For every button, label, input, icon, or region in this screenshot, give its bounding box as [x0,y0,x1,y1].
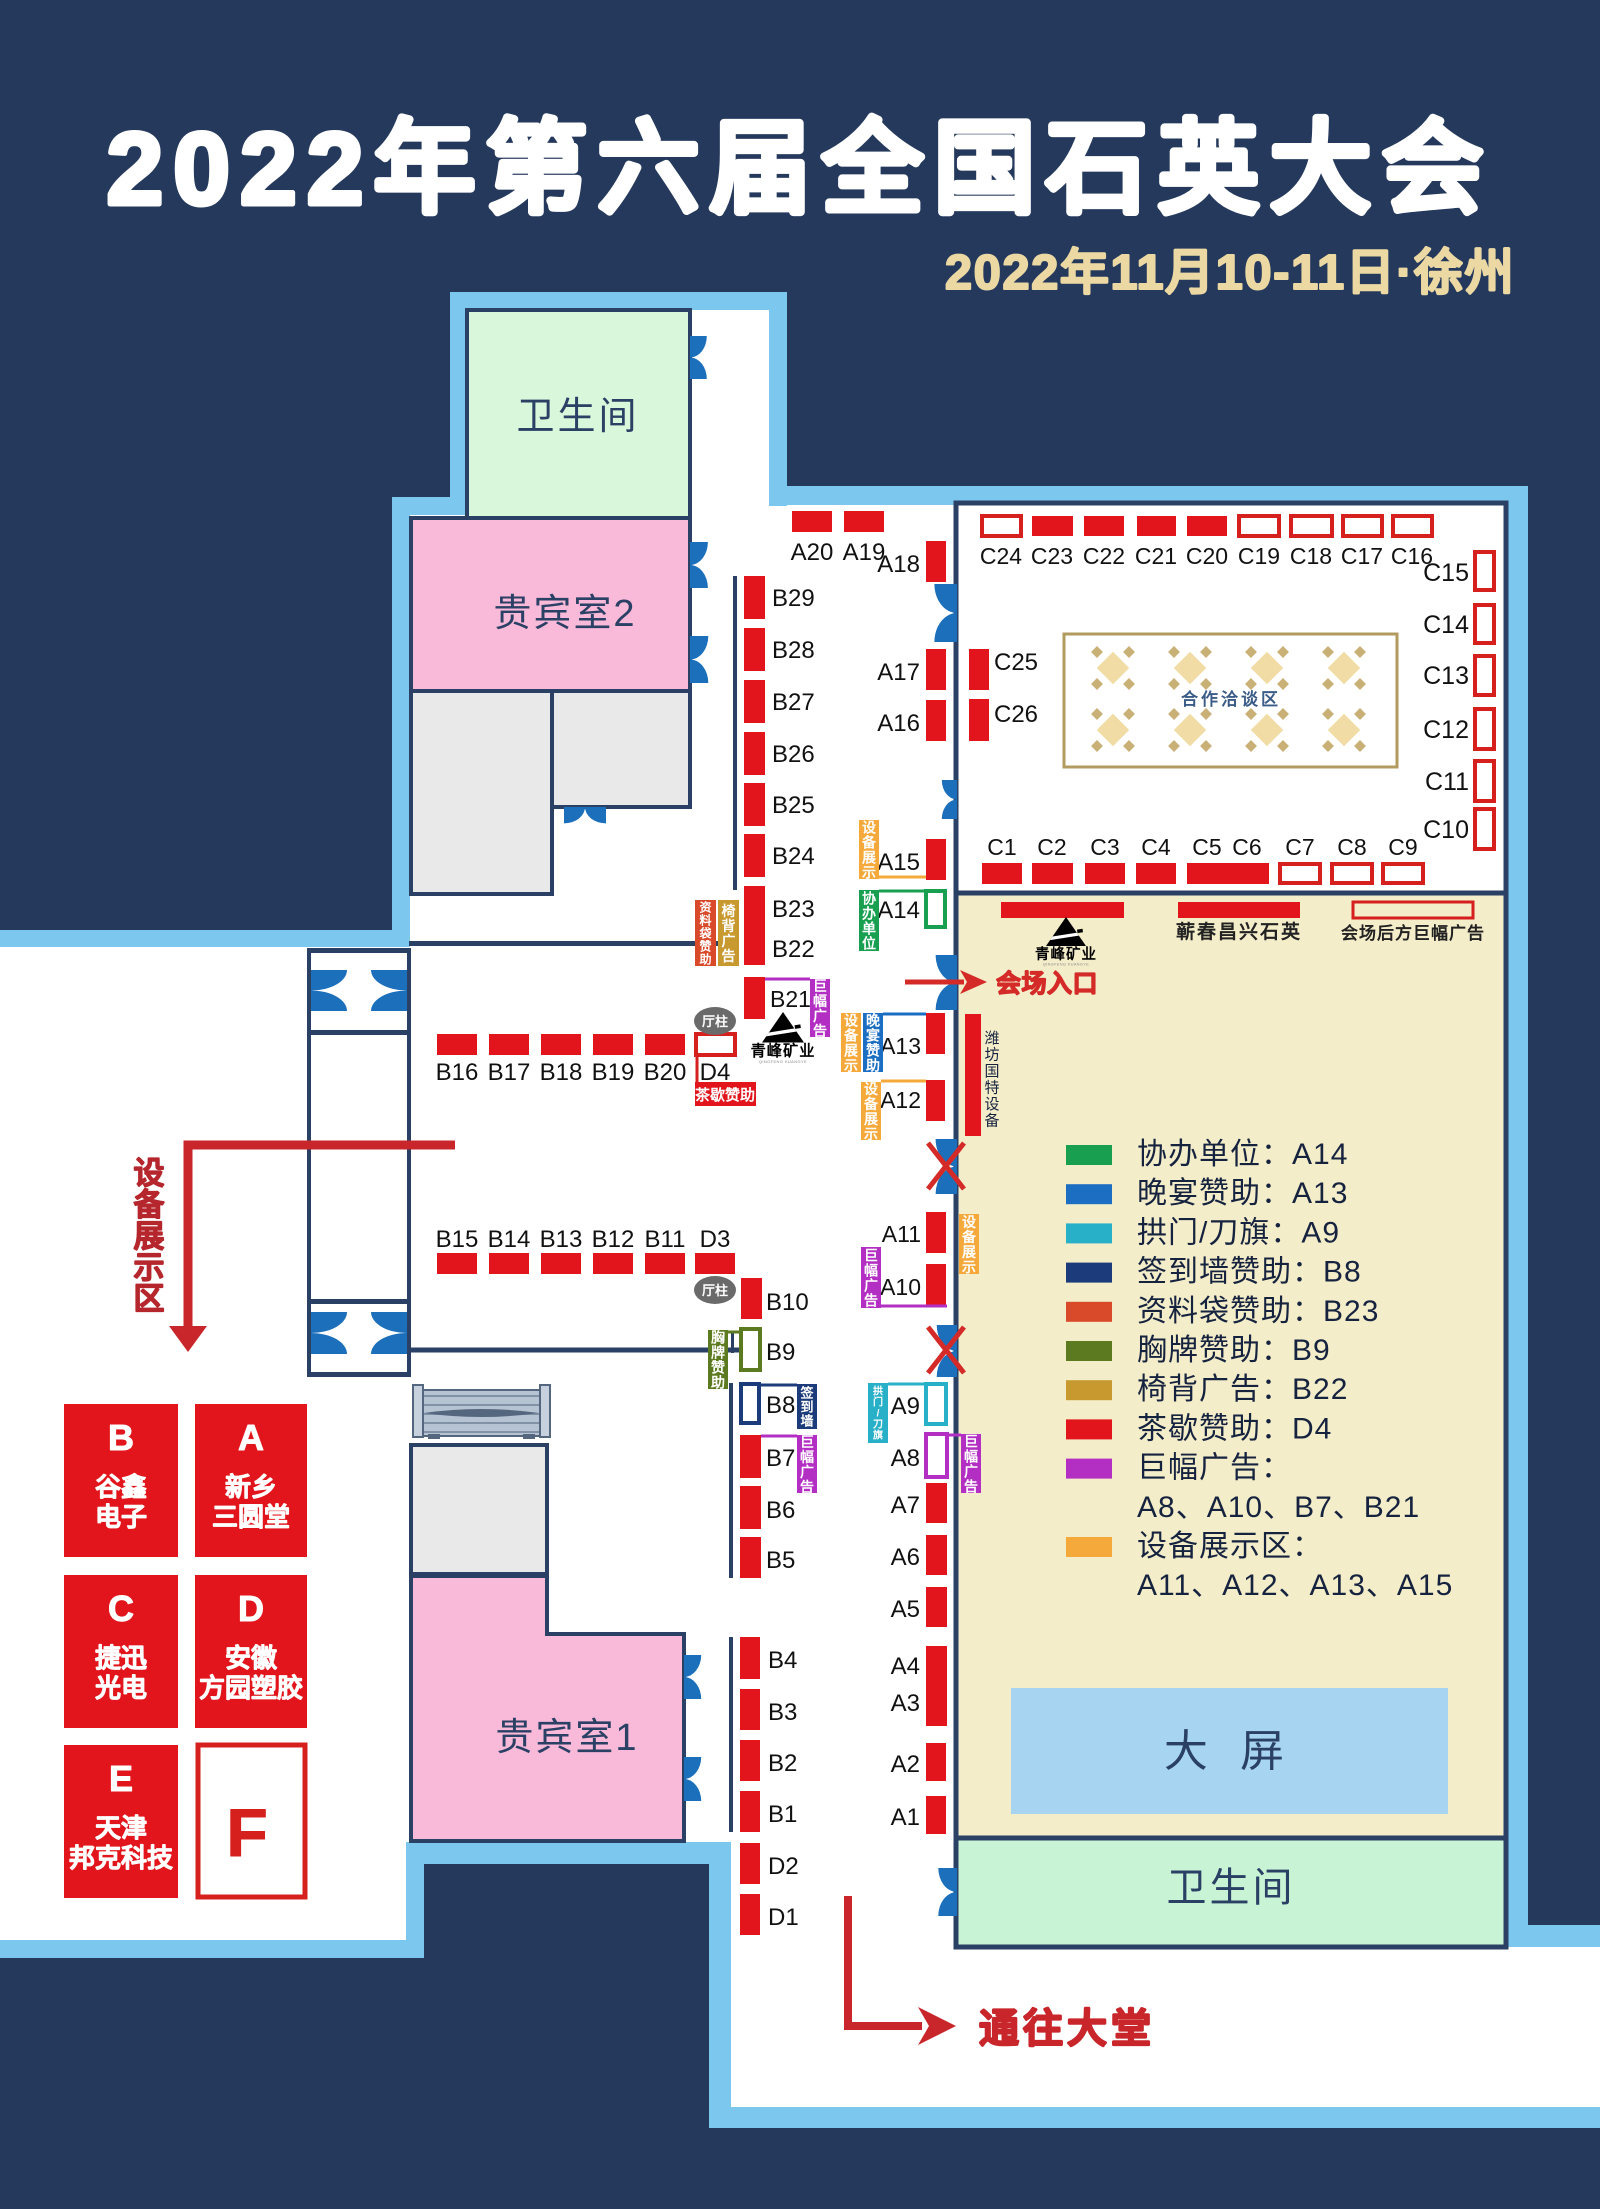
svg-text:D1: D1 [768,1904,799,1931]
svg-text:广: 广 [722,933,736,949]
svg-text:A12: A12 [880,1087,921,1113]
svg-text:牌: 牌 [711,1345,725,1361]
svg-text:胸: 胸 [711,1330,725,1346]
svg-text:胸牌赞助：B9: 胸牌赞助：B9 [1137,1334,1331,1367]
svg-text:安徽: 安徽 [225,1643,278,1673]
svg-text:背: 背 [722,918,736,934]
svg-text:示: 示 [844,1058,858,1074]
svg-text:巨幅广告：: 巨幅广告： [1137,1452,1292,1485]
svg-text:C5: C5 [1192,834,1221,860]
svg-text:C4: C4 [1141,834,1171,860]
svg-text:特: 特 [984,1080,999,1097]
svg-text:宴: 宴 [866,1028,880,1044]
svg-text:签到墙赞助：B8: 签到墙赞助：B8 [1137,1256,1362,1289]
svg-text:光电: 光电 [94,1673,147,1703]
svg-text:协: 协 [862,891,876,907]
svg-text:备: 备 [861,835,877,851]
svg-text:QINGFENG KUANGYE: QINGFENG KUANGYE [1043,963,1089,967]
svg-text:备: 备 [961,1229,977,1245]
svg-text:A17: A17 [877,659,920,686]
svg-text:捷迅: 捷迅 [95,1643,147,1673]
svg-text:C17: C17 [1341,543,1383,569]
svg-text:A9: A9 [891,1393,920,1420]
svg-text:广: 广 [800,1464,814,1480]
svg-text:示: 示 [962,1259,976,1275]
svg-text:C14: C14 [1423,611,1469,639]
svg-text:B: B [108,1417,134,1458]
svg-text:幅: 幅 [864,1263,878,1279]
svg-text:B27: B27 [772,689,815,716]
svg-text:A13: A13 [880,1033,921,1059]
svg-text:B24: B24 [772,843,815,870]
svg-text:C22: C22 [1083,543,1125,569]
svg-text:设: 设 [844,1013,859,1029]
svg-text:C25: C25 [994,649,1038,676]
svg-text:单: 单 [862,921,876,937]
svg-text:B15: B15 [436,1226,479,1253]
svg-text:A14: A14 [877,897,920,924]
svg-text:幅: 幅 [964,1449,978,1465]
svg-text:B16: B16 [436,1059,479,1086]
svg-text:备: 备 [863,1096,879,1112]
svg-text:贵宾室2: 贵宾室2 [493,593,636,635]
svg-text:墙: 墙 [800,1414,813,1429]
svg-text:厅柱: 厅柱 [702,1283,728,1298]
svg-text:晚: 晚 [866,1013,880,1029]
svg-text:方园塑胶: 方园塑胶 [199,1673,303,1703]
svg-text:C20: C20 [1186,543,1228,569]
svg-text:F: F [226,1795,268,1871]
svg-text:设: 设 [134,1156,165,1191]
svg-text:B29: B29 [772,585,815,612]
svg-text:展: 展 [962,1244,976,1260]
svg-text:D3: D3 [700,1226,731,1253]
svg-text:C13: C13 [1423,662,1469,690]
svg-text:潍: 潍 [984,1030,999,1047]
svg-text:C26: C26 [994,701,1038,728]
svg-text:C21: C21 [1135,543,1177,569]
svg-text:设: 设 [984,1096,999,1113]
svg-text:会场入口: 会场入口 [996,970,1098,998]
svg-text:A3: A3 [891,1690,920,1717]
svg-text:广: 广 [864,1278,878,1294]
svg-text:资料袋赞助：B23: 资料袋赞助：B23 [1137,1295,1379,1328]
svg-text:广: 广 [813,1008,827,1024]
svg-text:拱门/刀旗：A9: 拱门/刀旗：A9 [1137,1216,1340,1249]
svg-text:设: 设 [864,1081,879,1097]
svg-text:展: 展 [864,1111,878,1127]
svg-text:大 屏: 大 屏 [1164,1727,1294,1776]
svg-text:巨: 巨 [864,1248,878,1264]
svg-text:D2: D2 [768,1853,799,1880]
svg-text:卫生间: 卫生间 [516,396,639,438]
svg-text:资: 资 [699,900,711,915]
svg-text:告: 告 [964,1479,978,1495]
svg-text:告: 告 [722,948,736,964]
svg-text:B7: B7 [766,1445,795,1472]
svg-text:A5: A5 [891,1596,920,1623]
svg-text:晚宴赞助：A13: 晚宴赞助：A13 [1137,1177,1348,1210]
svg-text:示: 示 [134,1250,165,1285]
svg-text:B11: B11 [645,1226,686,1253]
svg-text:A10: A10 [880,1274,921,1300]
svg-text:国: 国 [984,1063,999,1080]
svg-text:设备展示区：: 设备展示区： [1137,1530,1323,1563]
svg-text:广: 广 [964,1464,978,1480]
svg-text:B9: B9 [766,1339,795,1366]
svg-text:展: 展 [134,1219,165,1254]
svg-text:谷鑫: 谷鑫 [95,1472,147,1502]
svg-text:B10: B10 [766,1289,809,1316]
svg-text:A20: A20 [791,539,834,566]
svg-text:告: 告 [800,1479,814,1495]
svg-text:蕲春昌兴石英: 蕲春昌兴石英 [1176,920,1302,943]
svg-text:厅柱: 厅柱 [702,1014,728,1029]
svg-text:E: E [109,1758,133,1799]
svg-text:办: 办 [862,906,876,922]
svg-text:位: 位 [862,936,876,952]
svg-text:助: 助 [711,1375,725,1391]
svg-text:D4: D4 [700,1059,731,1086]
svg-text:椅: 椅 [722,903,736,919]
svg-text:B19: B19 [592,1059,635,1086]
svg-text:D: D [238,1588,264,1629]
svg-text:C2: C2 [1037,834,1066,860]
svg-text:巨: 巨 [964,1434,978,1450]
svg-text:门: 门 [873,1396,883,1409]
svg-text:B1: B1 [768,1801,797,1828]
svg-text:C18: C18 [1290,543,1332,569]
svg-text:新乡: 新乡 [225,1472,277,1502]
svg-text:贵宾室1: 贵宾室1 [495,1717,638,1759]
svg-text:C: C [108,1588,134,1629]
svg-text:C15: C15 [1423,559,1469,587]
svg-text:示: 示 [862,865,876,881]
svg-text:B2: B2 [768,1750,797,1777]
svg-text:A1: A1 [891,1804,920,1831]
svg-text:QINGFENG KUANGYE: QINGFENG KUANGYE [759,1059,807,1064]
svg-text:B6: B6 [766,1497,795,1524]
svg-text:C7: C7 [1285,834,1314,860]
svg-text:合作洽谈区: 合作洽谈区 [1181,689,1281,709]
svg-text:A4: A4 [891,1653,920,1680]
svg-text:A16: A16 [877,710,920,737]
svg-text:料: 料 [699,913,711,928]
svg-text:赞: 赞 [710,1360,725,1376]
svg-text:青峰矿业: 青峰矿业 [1035,945,1097,963]
svg-text:幅: 幅 [800,1449,814,1465]
svg-text:三圆堂: 三圆堂 [212,1502,290,1532]
svg-text:B12: B12 [592,1226,635,1253]
svg-text:/: / [877,1409,880,1420]
svg-text:协办单位：A14: 协办单位：A14 [1137,1138,1348,1171]
svg-text:通往大堂: 通往大堂 [979,2007,1155,2051]
svg-text:拱: 拱 [873,1385,883,1398]
svg-text:2022年11月10-11日·徐州: 2022年11月10-11日·徐州 [945,246,1515,300]
svg-text:C11: C11 [1425,768,1469,796]
svg-text:A8: A8 [891,1445,920,1472]
svg-text:B22: B22 [772,936,815,963]
svg-text:A11: A11 [882,1221,921,1247]
svg-text:助: 助 [699,952,711,967]
svg-text:刀: 刀 [873,1420,883,1431]
svg-text:C6: C6 [1232,834,1261,860]
svg-text:旗: 旗 [873,1429,883,1442]
svg-text:备: 备 [984,1113,999,1130]
svg-text:2022年第六届全国石英大会: 2022年第六届全国石英大会 [107,112,1494,226]
svg-text:C23: C23 [1031,543,1073,569]
svg-text:A8、A10、B7、B21: A8、A10、B7、B21 [1137,1491,1420,1524]
svg-text:卫生间: 卫生间 [1167,1866,1296,1910]
svg-text:B13: B13 [540,1226,583,1253]
svg-text:C24: C24 [980,543,1022,569]
svg-text:A2: A2 [891,1751,920,1778]
svg-text:青峰矿业: 青峰矿业 [751,1042,816,1060]
svg-text:A7: A7 [891,1492,920,1519]
svg-text:B14: B14 [488,1226,531,1253]
svg-text:B28: B28 [772,637,815,664]
svg-text:A18: A18 [877,551,920,578]
svg-text:袋: 袋 [698,926,712,941]
svg-text:会场后方巨幅广告: 会场后方巨幅广告 [1341,923,1485,943]
svg-text:C10: C10 [1423,816,1469,844]
svg-text:B18: B18 [540,1059,583,1086]
svg-text:C19: C19 [1238,543,1280,569]
svg-text:赞: 赞 [698,939,711,954]
svg-text:B20: B20 [644,1059,687,1086]
svg-text:展: 展 [862,850,876,866]
svg-text:巨: 巨 [813,978,827,994]
svg-text:设: 设 [862,820,877,836]
svg-text:A: A [238,1417,264,1458]
svg-text:设: 设 [962,1214,977,1230]
svg-text:C8: C8 [1337,834,1366,860]
svg-text:备: 备 [133,1187,166,1222]
svg-text:示: 示 [864,1126,878,1142]
svg-text:A15: A15 [877,849,920,876]
svg-text:B21: B21 [770,986,811,1012]
svg-text:助: 助 [866,1058,880,1074]
svg-text:茶歇赞助: 茶歇赞助 [695,1086,755,1104]
svg-text:C1: C1 [987,834,1016,860]
svg-text:区: 区 [134,1282,165,1317]
svg-text:告: 告 [864,1293,878,1309]
svg-text:电子: 电子 [95,1502,147,1532]
svg-text:C9: C9 [1388,834,1417,860]
svg-text:C3: C3 [1090,834,1119,860]
svg-text:B26: B26 [772,741,815,768]
svg-text:邦克科技: 邦克科技 [69,1843,173,1873]
svg-text:B3: B3 [768,1699,797,1726]
svg-text:A6: A6 [891,1544,920,1571]
svg-text:展: 展 [844,1043,858,1059]
svg-text:B25: B25 [772,792,815,819]
svg-text:坊: 坊 [984,1047,999,1064]
svg-text:B8: B8 [766,1392,795,1419]
svg-text:A11、A12、A13、A15: A11、A12、A13、A15 [1137,1569,1453,1602]
svg-text:B5: B5 [766,1547,795,1574]
svg-text:备: 备 [843,1028,859,1044]
svg-text:B23: B23 [772,896,815,923]
svg-text:茶歇赞助：D4: 茶歇赞助：D4 [1137,1412,1332,1445]
svg-text:幅: 幅 [813,993,827,1009]
svg-text:B4: B4 [768,1647,797,1674]
svg-text:C12: C12 [1423,716,1469,744]
svg-text:天津: 天津 [95,1813,147,1843]
svg-text:B17: B17 [488,1059,531,1086]
svg-text:赞: 赞 [865,1043,880,1059]
svg-text:签: 签 [799,1386,814,1401]
svg-text:告: 告 [813,1023,827,1039]
svg-text:巨: 巨 [800,1434,814,1450]
svg-text:椅背广告：B22: 椅背广告：B22 [1137,1373,1348,1406]
svg-text:到: 到 [800,1400,813,1415]
